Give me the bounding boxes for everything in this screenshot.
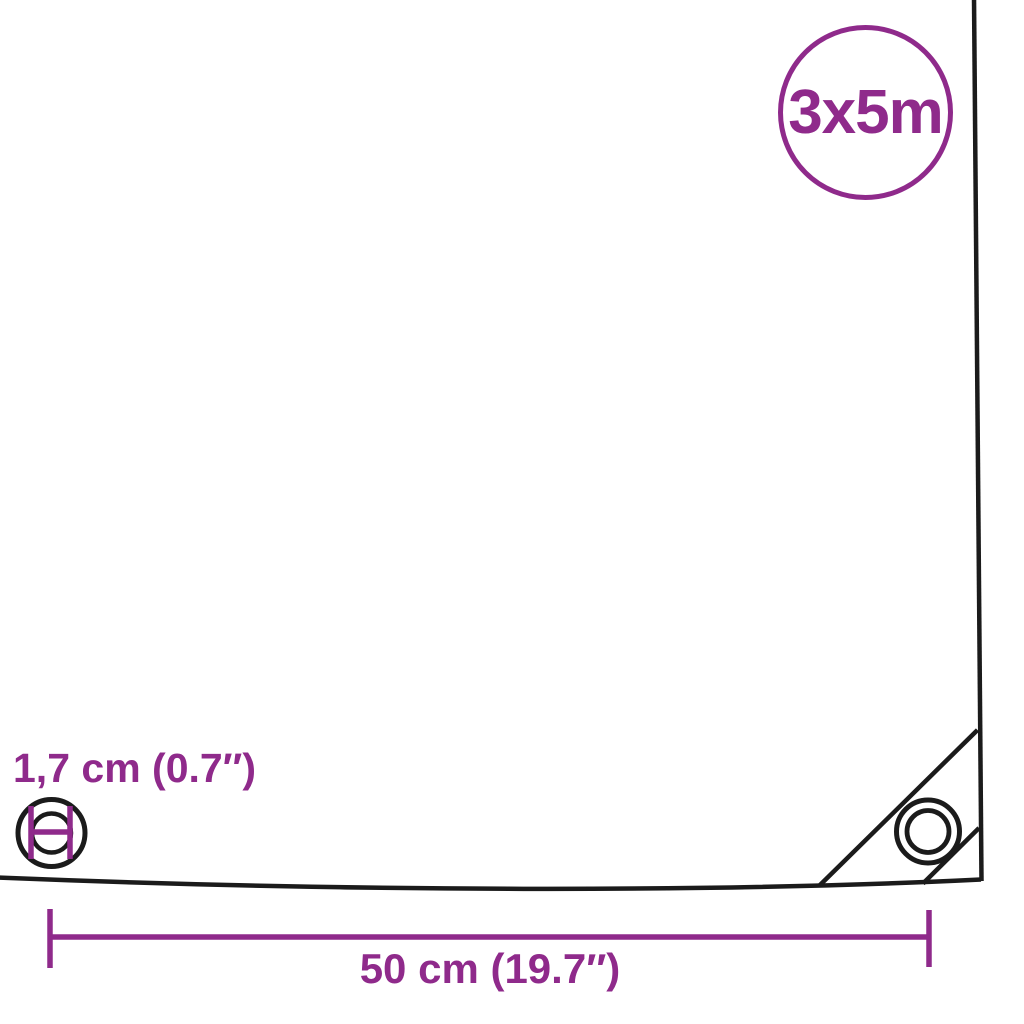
corner-eyelet-icon	[897, 800, 960, 863]
tarp-right-edge	[974, 0, 982, 881]
eyelet-diameter-label: 1,7 cm (0.7″)	[13, 747, 256, 790]
eyelet-edge-distance-label: 50 cm (19.7″)	[50, 947, 930, 991]
size-badge-label: 3x5m	[788, 77, 943, 148]
corner-seam-outer	[820, 730, 978, 885]
corner-eyelet-inner-ring	[907, 811, 949, 853]
size-badge: 3x5m	[778, 25, 953, 200]
tarp-bottom-edge	[0, 878, 981, 889]
corner-reinforcement	[820, 730, 979, 885]
tarpaulin-dimension-diagram: 3x5m 1,7 cm (0.7″) 50 cm (19.7″)	[0, 0, 1024, 1024]
eyelet-diameter-icon	[18, 800, 85, 867]
